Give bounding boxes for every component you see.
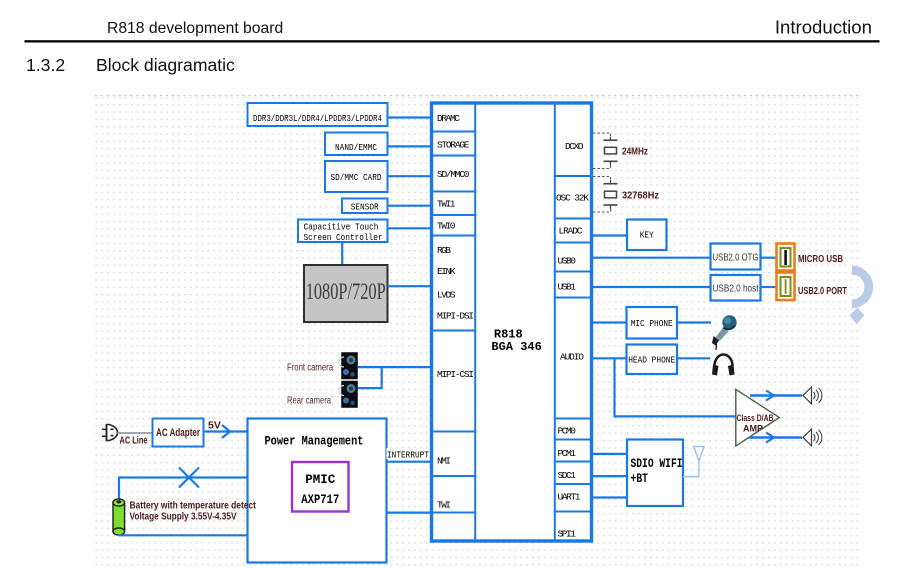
svg-text:Introduction: Introduction bbox=[775, 17, 872, 38]
svg-text:STORAGE: STORAGE bbox=[437, 140, 470, 151]
svg-text:PMIC: PMIC bbox=[305, 473, 336, 487]
svg-text:OSC 32K: OSC 32K bbox=[556, 193, 589, 204]
svg-text:DDR3/DDR3L/DDR4/LPDDR3/LPDDR4: DDR3/DDR3L/DDR4/LPDDR3/LPDDR4 bbox=[253, 113, 382, 124]
svg-text:NMI: NMI bbox=[437, 456, 451, 467]
svg-text:LRADC: LRADC bbox=[559, 226, 583, 237]
svg-text:SPI1: SPI1 bbox=[558, 529, 577, 540]
svg-text:TWI: TWI bbox=[437, 500, 451, 511]
svg-text:UART1: UART1 bbox=[558, 492, 581, 503]
svg-text:MIC PHONE: MIC PHONE bbox=[631, 318, 673, 329]
svg-text:BGA 346: BGA 346 bbox=[491, 340, 541, 354]
svg-text:Rear camera: Rear camera bbox=[287, 396, 331, 407]
svg-text:Screen Controller: Screen Controller bbox=[304, 232, 383, 243]
svg-text:MIPI-DSI: MIPI-DSI bbox=[437, 311, 474, 322]
svg-text:R818 development board: R818 development board bbox=[107, 20, 283, 37]
svg-text:DCXO: DCXO bbox=[565, 141, 584, 152]
svg-text:Class D/AB: Class D/AB bbox=[737, 413, 774, 423]
svg-text:USB2.0 PORT: USB2.0 PORT bbox=[798, 285, 847, 297]
svg-text:TWI1: TWI1 bbox=[437, 199, 456, 210]
svg-text:SDIO WIFI: SDIO WIFI bbox=[631, 457, 683, 471]
svg-text:SD/MMC0: SD/MMC0 bbox=[437, 169, 470, 180]
svg-text:KEY: KEY bbox=[640, 230, 654, 241]
svg-text:AXP717: AXP717 bbox=[301, 493, 339, 507]
svg-text:USB1: USB1 bbox=[558, 282, 577, 293]
svg-text:AMP: AMP bbox=[743, 424, 763, 434]
svg-text:AC Adapter: AC Adapter bbox=[156, 427, 201, 439]
svg-text:AC Line: AC Line bbox=[120, 435, 148, 447]
svg-text:Front camera: Front camera bbox=[287, 363, 333, 374]
svg-text:MIPI-CSI: MIPI-CSI bbox=[437, 369, 474, 380]
svg-text:1.3.2: 1.3.2 bbox=[26, 55, 65, 75]
svg-text:1080P/720P: 1080P/720P bbox=[306, 279, 386, 304]
svg-text:Battery with temperature detec: Battery with temperature detect bbox=[130, 501, 257, 512]
svg-text:NAND/EMMC: NAND/EMMC bbox=[335, 142, 377, 153]
svg-text:MICRO USB: MICRO USB bbox=[798, 253, 843, 265]
svg-text:SDC1: SDC1 bbox=[558, 470, 577, 481]
svg-text:+BT: +BT bbox=[631, 472, 649, 486]
svg-text:Block diagramatic: Block diagramatic bbox=[96, 55, 235, 75]
svg-text:USB2.0 host: USB2.0 host bbox=[713, 284, 759, 295]
svg-text:HEAD PHONE: HEAD PHONE bbox=[628, 355, 675, 366]
svg-text:Power Management: Power Management bbox=[265, 435, 364, 449]
svg-text:24MHz: 24MHz bbox=[622, 146, 648, 158]
svg-text:RGB: RGB bbox=[437, 245, 451, 256]
svg-text:DRAMC: DRAMC bbox=[437, 113, 460, 124]
svg-text:PCM1: PCM1 bbox=[558, 448, 577, 459]
svg-text:AUDIO: AUDIO bbox=[560, 352, 584, 363]
svg-text:PCM0: PCM0 bbox=[558, 426, 577, 437]
svg-text:EINK: EINK bbox=[437, 266, 456, 277]
svg-text:32768Hz: 32768Hz bbox=[622, 189, 659, 201]
svg-text:LVDS: LVDS bbox=[437, 290, 456, 301]
svg-text:INTERRUPT: INTERRUPT bbox=[387, 450, 429, 461]
svg-text:SD/MMC CARD: SD/MMC CARD bbox=[331, 172, 382, 183]
svg-text:USB0: USB0 bbox=[558, 256, 577, 267]
svg-text:SENSOR: SENSOR bbox=[351, 202, 379, 213]
svg-text:5V: 5V bbox=[208, 420, 221, 432]
svg-text:USB2.0 OTG: USB2.0 OTG bbox=[713, 252, 759, 263]
svg-text:TWI0: TWI0 bbox=[437, 221, 456, 232]
svg-text:Voltage Supply 3.55V-4.35V: Voltage Supply 3.55V-4.35V bbox=[130, 511, 237, 522]
